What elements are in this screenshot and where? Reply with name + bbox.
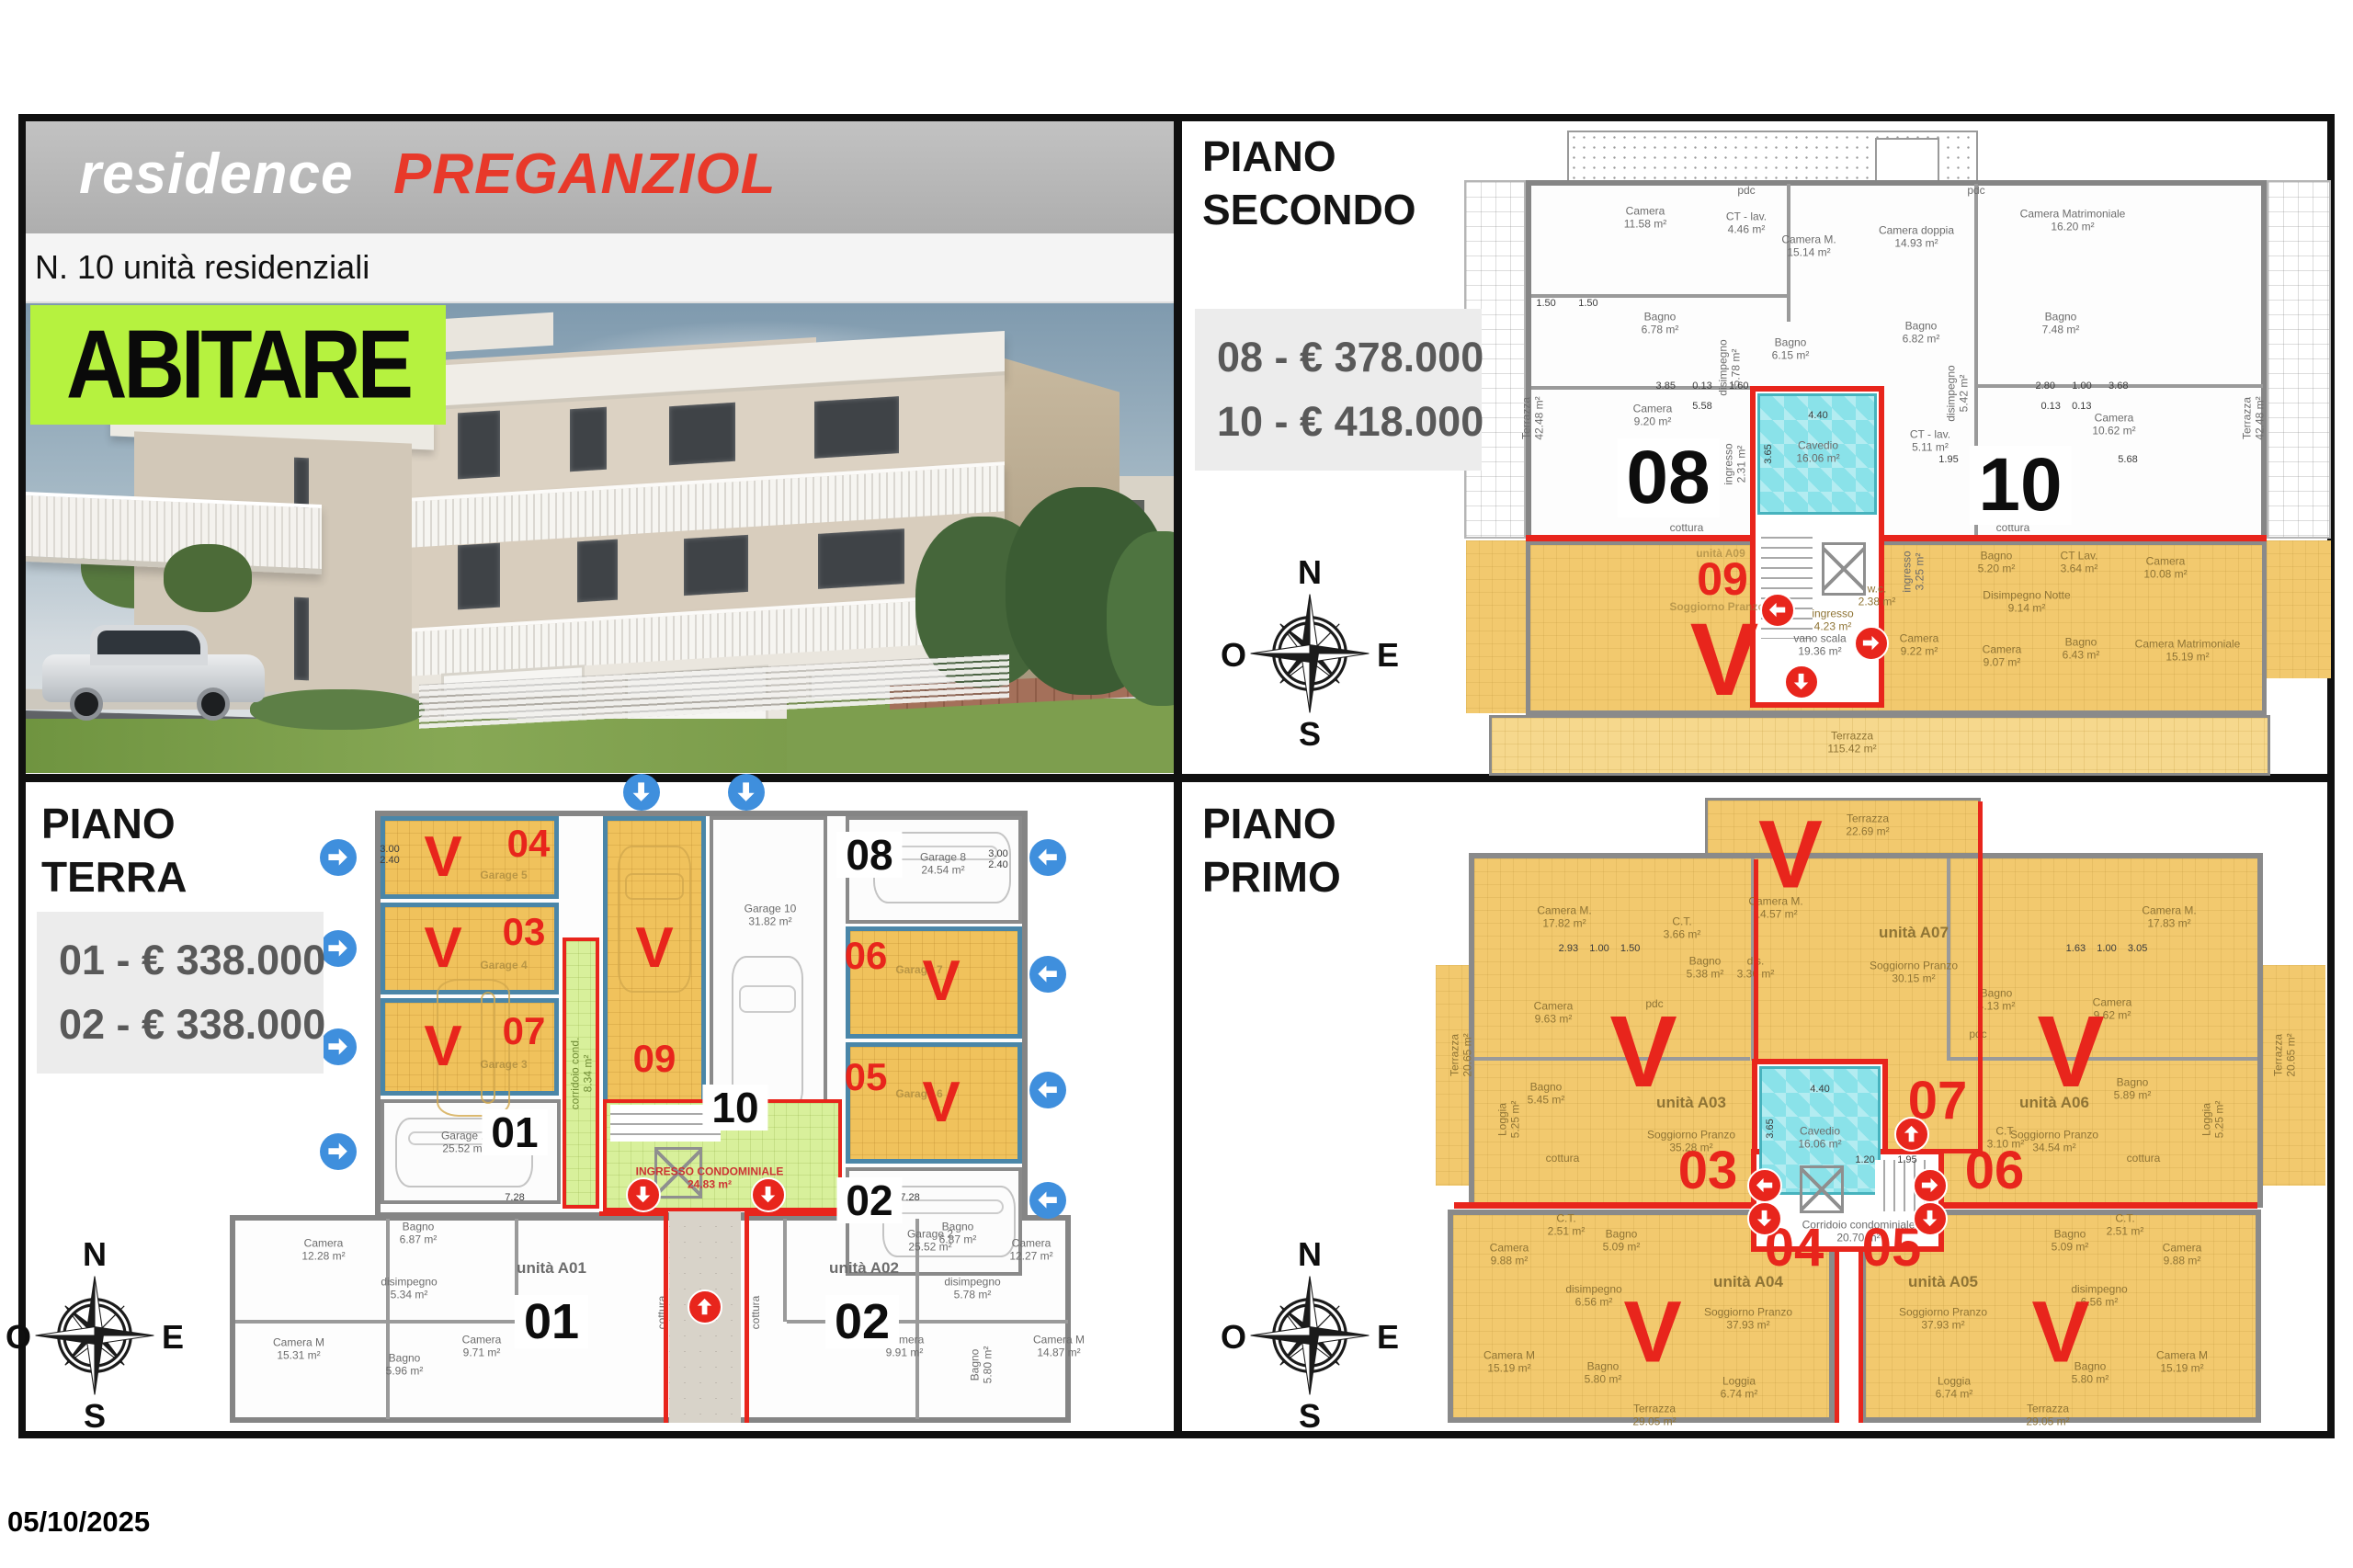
sold-mark-07: V <box>424 1018 461 1075</box>
core-arrow-up <box>1894 1117 1929 1152</box>
unit-number-06: 06 <box>845 937 888 975</box>
unit-number-06: 06 <box>1965 1144 2025 1198</box>
sold-mark-06: V <box>922 953 960 1010</box>
drive-arrow <box>1029 1182 1066 1219</box>
drive-arrow <box>728 774 765 811</box>
title-piano-secondo: PIANO SECONDO <box>1202 131 1416 236</box>
drive-arrow <box>623 774 660 811</box>
unit-number-04: 04 <box>507 824 551 863</box>
abitare-logo: ABITARE <box>30 305 446 425</box>
unit-number-01g: 01 <box>482 1109 547 1155</box>
price-list-secondo: 08 - € 378.000 10 - € 418.000 <box>1195 309 1482 471</box>
price-unit-02: 02 - € 338.000 <box>59 993 301 1057</box>
sold-mark-a03: V <box>1609 1002 1677 1103</box>
entry-arrow-down-left <box>626 1177 661 1212</box>
compass-rose-primo: N E S O <box>1222 1239 1397 1430</box>
sold-mark-a06: V <box>2037 1002 2104 1103</box>
terrace-09 <box>1489 715 2270 776</box>
exit-arrow-down <box>1784 665 1819 699</box>
unit-number-03: 03 <box>503 913 546 951</box>
unit-number-08: 08 <box>836 832 902 878</box>
drive-arrow <box>1029 839 1066 876</box>
core-arrow-right <box>1913 1168 1948 1203</box>
price-unit-08: 08 - € 378.000 <box>1217 325 1460 390</box>
unit-number-05: 05 <box>1862 1221 1922 1275</box>
unit-number-01: 01 <box>515 1295 588 1348</box>
title-piano-terra: PIANO TERRA <box>41 798 187 903</box>
sold-mark-09: V <box>635 920 673 977</box>
core-arrow-left <box>1747 1168 1782 1203</box>
price-unit-01: 01 - € 338.000 <box>59 928 301 993</box>
sold-mark-a05: V <box>2031 1290 2089 1377</box>
core-arrow-down-left <box>1747 1201 1782 1236</box>
drive-arrow <box>320 1028 357 1065</box>
drive-arrow <box>1029 956 1066 993</box>
subtitle-strip: N. 10 unità residenziali <box>26 233 1174 303</box>
unit-number-02g: 02 <box>836 1177 902 1223</box>
unit-number-05: 05 <box>845 1058 888 1096</box>
sold-mark-a07: V <box>1758 807 1823 903</box>
unit-number-10: 10 <box>1969 446 2071 525</box>
sold-mark-04: V <box>424 829 461 886</box>
entry-arrow-down-right <box>751 1177 786 1212</box>
core-arrow-down-right <box>1913 1201 1948 1236</box>
unit-number-09: 09 <box>633 1040 676 1078</box>
drive-arrow <box>1029 1072 1066 1108</box>
price-unit-10: 10 - € 418.000 <box>1217 390 1460 454</box>
exit-arrow-right <box>1854 626 1889 661</box>
unit-number-08: 08 <box>1617 438 1719 517</box>
unit-number-07: 07 <box>503 1012 546 1051</box>
brand-residence: residence <box>79 142 354 207</box>
flyer-page: residence PREGANZIOL N. 10 unità residen… <box>0 0 2353 1568</box>
exit-arrow-left <box>1760 593 1795 628</box>
drive-arrow <box>320 930 357 967</box>
compass-rose-secondo: N E S O <box>1222 557 1397 748</box>
terrace-right <box>2267 180 2331 539</box>
unit-number-02: 02 <box>825 1295 899 1348</box>
sold-mark-09: V <box>1690 608 1759 711</box>
sold-mark-05: V <box>922 1074 960 1131</box>
compass-rose-terra: N E S O <box>7 1239 182 1430</box>
title-band: residence PREGANZIOL <box>26 121 1174 233</box>
terrace-a07 <box>1705 798 1981 857</box>
drive-arrow <box>320 839 357 876</box>
unit-number-03: 03 <box>1678 1144 1738 1198</box>
price-list-terra: 01 - € 338.000 02 - € 338.000 <box>37 912 324 1074</box>
drive-arrow <box>320 1133 357 1170</box>
unit-number-09: 09 <box>1697 556 1748 602</box>
units-count: N. 10 unità residenziali <box>35 248 369 287</box>
sold-mark-a04: V <box>1623 1290 1681 1377</box>
entry-arrow-up <box>688 1290 722 1324</box>
sold-mark-03: V <box>424 920 461 977</box>
title-piano-primo: PIANO PRIMO <box>1202 798 1341 903</box>
unit-number-10: 10 <box>702 1085 767 1131</box>
project-name: PREGANZIOL <box>393 142 776 207</box>
date-stamp: 05/10/2025 <box>7 1506 150 1539</box>
